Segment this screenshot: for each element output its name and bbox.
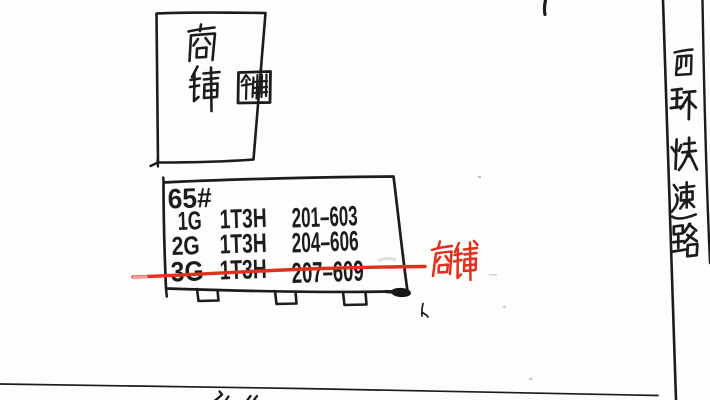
svg-text:204–606: 204–606 (291, 225, 359, 258)
svg-text:207–609: 207–609 (291, 256, 364, 290)
svg-text:3G: 3G (170, 255, 204, 287)
